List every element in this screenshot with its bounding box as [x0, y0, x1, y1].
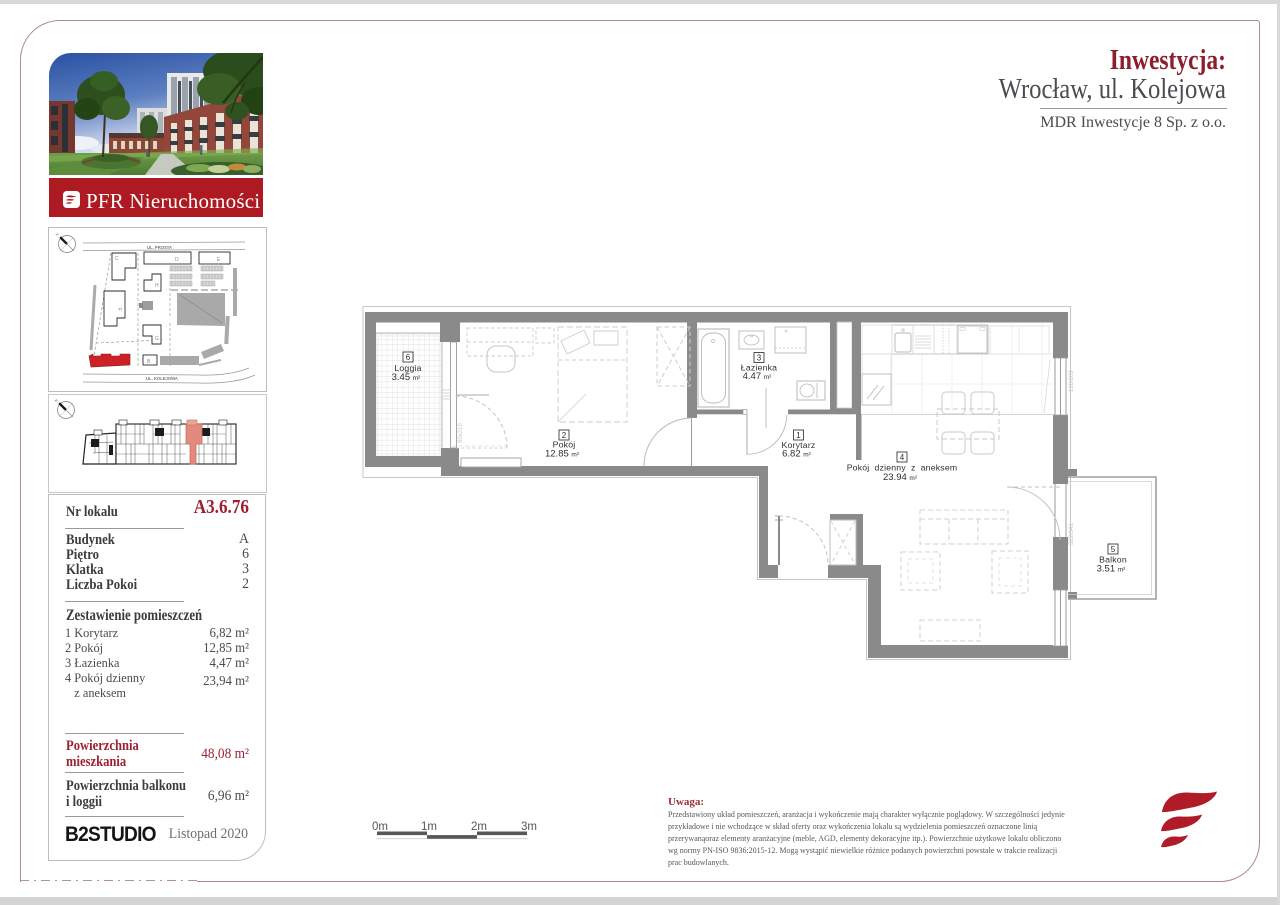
svg-text:3: 3 [757, 354, 762, 363]
svg-text:Pokój dzienny z aneksem: Pokój dzienny z aneksem [847, 463, 958, 473]
svg-text:12.85 m²: 12.85 m² [545, 449, 580, 460]
svg-text:23.94 m²: 23.94 m² [883, 472, 918, 483]
svg-text:3.51 m²: 3.51 m² [1097, 564, 1127, 575]
svg-text:0m: 0m [372, 821, 388, 833]
svg-text:2m: 2m [471, 821, 487, 833]
svg-text:4.47 m²: 4.47 m² [743, 371, 773, 382]
svg-text:3m: 3m [521, 821, 537, 833]
svg-text:5: 5 [1111, 545, 1116, 554]
svg-text:1m: 1m [421, 821, 437, 833]
svg-text:120/209: 120/209 [1069, 370, 1075, 392]
svg-text:4: 4 [900, 453, 905, 462]
svg-text:322/341: 322/341 [1069, 523, 1075, 545]
svg-text:6.82 m²: 6.82 m² [782, 449, 812, 460]
svg-text:6: 6 [406, 353, 411, 362]
svg-text:90x210: 90x210 [458, 423, 464, 443]
svg-text:1: 1 [796, 431, 801, 440]
